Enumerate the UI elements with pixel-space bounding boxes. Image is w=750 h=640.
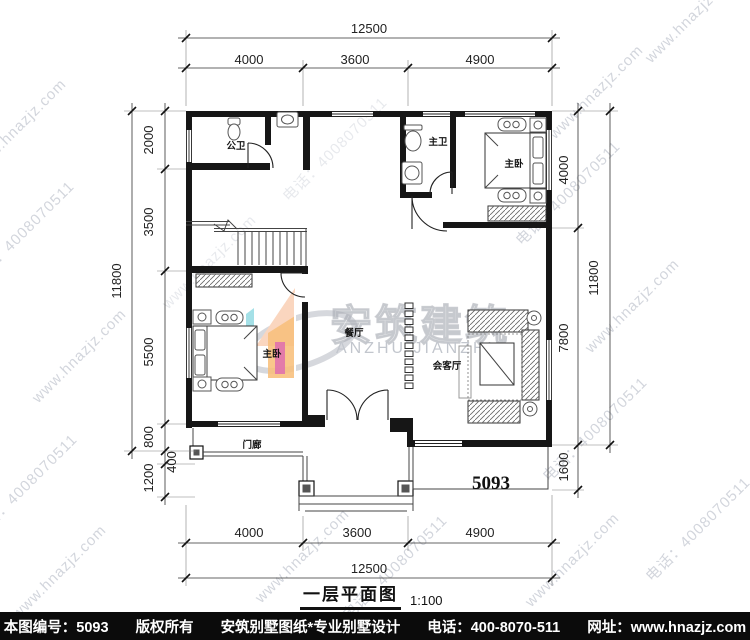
dim-bottom-seg1: 4000 — [235, 525, 264, 540]
doors — [248, 143, 452, 420]
dim-left-seg2: 3500 — [141, 208, 156, 237]
dim-top-overall: 12500 — [351, 21, 387, 36]
dim-right-overall: 11800 — [586, 260, 601, 295]
dim-right-seg1: 4000 — [556, 156, 571, 185]
footer-company: 安筑别墅图纸*专业别墅设计 — [221, 616, 401, 637]
plan-number: 5093 — [472, 473, 510, 494]
room-label-master-bath: 主卫 — [428, 136, 448, 148]
footer-copyright: 版权所有 — [136, 616, 194, 637]
dim-bottom-overall: 12500 — [351, 561, 387, 576]
drawing-scale: 1:100 — [410, 593, 443, 610]
room-label-porch: 门廊 — [242, 439, 262, 451]
screen-divider — [405, 303, 413, 389]
dim-left-seg1: 2000 — [141, 126, 156, 155]
drawing-sheet: www.hnazjz.com 电话：4008070511 www.hnazjz.… — [0, 0, 750, 640]
drawing-title-text: 一层平面图 — [300, 580, 401, 610]
dim-left-seg3: 5500 — [141, 338, 156, 367]
dim-bottom-seg3: 4900 — [466, 525, 495, 540]
dim-left-seg5: 400 — [164, 451, 179, 473]
dim-right-seg2: 7800 — [556, 324, 571, 353]
dim-right-seg3: 1600 — [556, 453, 571, 482]
staircase — [186, 220, 307, 266]
dim-top-seg3: 4900 — [466, 52, 495, 67]
footer-plan-number: 本图编号：5093 — [4, 616, 109, 637]
dim-left-overall: 11800 — [109, 263, 124, 298]
room-label-public-bath: 公卫 — [226, 141, 246, 152]
room-label-master-bed-left: 主卧 — [262, 348, 282, 360]
dim-bottom-seg2: 3600 — [343, 525, 372, 540]
room-label-dining: 餐厅 — [343, 327, 364, 339]
dim-top-seg1: 4000 — [235, 52, 264, 67]
drawing-title: 一层平面图 1:100 — [300, 580, 443, 610]
footer-bar: 本图编号：5093 版权所有 安筑别墅图纸*专业别墅设计 电话：400-8070… — [0, 612, 750, 640]
footer-phone: 电话：400-8070-511 — [427, 616, 560, 637]
dim-top-seg2: 3600 — [341, 52, 370, 67]
footer-website: 网址：www.hnazjz.com — [587, 616, 746, 637]
master-bedroom-left-furniture — [193, 274, 257, 391]
floor-plan-svg: 12500 4000 3600 4900 4000 3600 4900 1250… — [0, 0, 750, 612]
room-label-master-bed-right: 主卧 — [504, 158, 524, 170]
room-label-reception: 会客厅 — [433, 360, 462, 372]
dim-left-seg6: 1200 — [141, 464, 156, 493]
reception-furniture — [459, 310, 541, 423]
dim-left-seg4: 800 — [141, 426, 156, 448]
